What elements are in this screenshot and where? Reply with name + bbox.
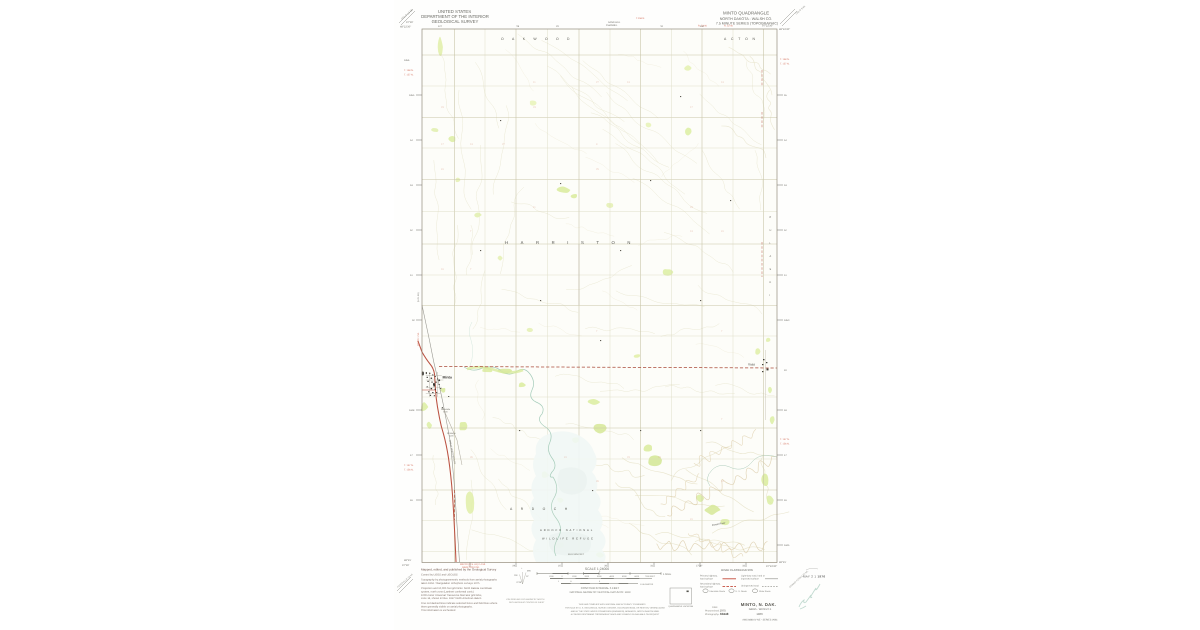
svg-text:MINTO, N. DAK.: MINTO, N. DAK.: [741, 602, 777, 607]
svg-text:1 MILE: 1 MILE: [663, 573, 671, 576]
svg-text:5345: 5345: [784, 544, 790, 547]
svg-text:25': 25': [556, 25, 560, 28]
svg-text:Secondary highway,: Secondary highway,: [700, 582, 721, 585]
svg-text:UTM GRID AND 1975 MAGNETIC NOR: UTM GRID AND 1975 MAGNETIC NORTH: [506, 598, 545, 601]
svg-text:48°15': 48°15': [404, 559, 412, 562]
svg-text:T. 157 N.: T. 157 N.: [780, 63, 790, 66]
svg-text:5350: 5350: [784, 319, 790, 322]
svg-text:Photography- 60448: Photography- 60448: [705, 612, 729, 616]
svg-text:97°22'30": 97°22'30": [766, 565, 777, 568]
svg-text:1963: 1963: [756, 612, 763, 616]
svg-text:Voss: Voss: [748, 363, 755, 367]
svg-text:CHANNEL: CHANNEL: [606, 24, 618, 27]
svg-text:hard surface: hard surface: [700, 586, 713, 589]
svg-text:5348: 5348: [409, 409, 415, 412]
svg-text:97°22'30": 97°22'30": [762, 25, 773, 28]
svg-text:T. 157 N.: T. 157 N.: [780, 438, 790, 441]
svg-text:U: U: [770, 229, 772, 232]
svg-text:Control by USGS and USC&GS: Control by USGS and USC&GS: [421, 574, 458, 577]
svg-text:NORTH DAKOTA - WALSH CO.: NORTH DAKOTA - WALSH CO.: [720, 17, 773, 21]
svg-text:N4815 - W9715/7.5: N4815 - W9715/7.5: [749, 608, 772, 611]
svg-text:5356: 5356: [404, 59, 410, 62]
svg-text:427: 427: [438, 25, 443, 28]
svg-text:GEOLOGICAL SURVEY: GEOLOGICAL SURVEY: [432, 19, 479, 24]
svg-text:State Route: State Route: [759, 590, 771, 593]
svg-text:48°22'30": 48°22'30": [779, 28, 790, 31]
svg-text:25': 25': [558, 565, 562, 568]
svg-text:(U.S. 81): (U.S. 81): [417, 292, 420, 302]
svg-text:zone 14, shown in blue. 1927: zone 14, shown in blue. 1927 North Ameri…: [421, 597, 481, 600]
svg-text:T. 157 N.: T. 157 N.: [404, 464, 414, 467]
svg-text:improved surface: improved surface: [741, 578, 759, 581]
svg-text:1963: 1963: [712, 606, 718, 609]
svg-text:taken 1963. Triangulation o: taken 1963. Triangulation orthophoto sur…: [421, 582, 480, 585]
svg-text:U. S. Route: U. S. Route: [736, 590, 748, 593]
svg-text:48°22'30": 48°22'30": [400, 26, 411, 29]
svg-text:97°30': 97°30': [406, 21, 414, 24]
svg-text:GN: GN: [514, 574, 518, 577]
svg-text:Cem: Cem: [443, 411, 448, 414]
svg-text:This information is unchecked: This information is unchecked: [421, 609, 456, 612]
svg-text:MINTO 1 MI.: MINTO 1 MI.: [417, 332, 420, 346]
svg-text:T. 156 N.: T. 156 N.: [404, 469, 414, 472]
svg-text:ARDOCH: ARDOCH: [510, 507, 576, 511]
svg-text:FOR SALE BY U. S. GEOLOGICAL S: FOR SALE BY U. S. GEOLOGICAL SURVEY, DEN…: [565, 606, 665, 609]
svg-text:0°28': 0°28': [517, 581, 523, 584]
svg-text:Primary highway,: Primary highway,: [700, 574, 718, 577]
svg-text:ROAD CLASSIFICATION: ROAD CLASSIFICATION: [721, 568, 753, 572]
svg-text:ACTON: ACTON: [724, 37, 760, 41]
svg-text:MINTO QUADRANGLE: MINTO QUADRANGLE: [723, 11, 769, 16]
svg-text:27'30": 27'30": [696, 565, 703, 568]
svg-text:WILDLIFE REFUGE: WILDLIFE REFUGE: [542, 538, 595, 541]
svg-text:St Marys: St Marys: [447, 432, 457, 435]
svg-text:97°30': 97°30': [402, 564, 410, 567]
svg-text:ARDOCH NATIONAL: ARDOCH NATIONAL: [540, 529, 594, 532]
svg-text:T. 158 N.: T. 158 N.: [404, 69, 414, 72]
svg-text:THIS MAP COMPLIES WITH NATIONA: THIS MAP COMPLIES WITH NATIONAL MAP ACCU…: [578, 603, 646, 606]
svg-text:QUADRANGLE LOCATION: QUADRANGLE LOCATION: [668, 605, 693, 608]
svg-text:NATIONAL GEODETIC VERTICAL: NATIONAL GEODETIC VERTICAL DATUM OF 1929: [570, 591, 631, 594]
svg-text:7000 FEET: 7000 FEET: [645, 575, 656, 578]
svg-text:T.158 N.: T.158 N.: [636, 17, 645, 20]
svg-text:T. 156 N.: T. 156 N.: [780, 443, 790, 446]
svg-text:T. 158 N.: T. 158 N.: [780, 58, 790, 61]
svg-text:Riverside: Riverside: [441, 408, 451, 411]
svg-text:AND BY THE STATE WATER COMMISS: AND BY THE STATE WATER COMMISSION (ENGIN…: [571, 610, 660, 613]
svg-text:A FOLDER DESCRIBING TOPOGRAPHI: A FOLDER DESCRIBING TOPOGRAPHIC MAPS AND…: [571, 613, 660, 616]
svg-text:R. 52 W.: R. 52 W.: [724, 25, 734, 28]
svg-text:5355: 5355: [409, 94, 415, 97]
svg-text:Minto: Minto: [443, 376, 453, 380]
svg-text:T. 157 N.: T. 157 N.: [404, 74, 414, 77]
svg-text:1 KILOMETER: 1 KILOMETER: [640, 583, 654, 586]
svg-text:48°15': 48°15': [779, 561, 787, 564]
svg-text:Mapped, edited, and published: Mapped, edited, and published by the Geo…: [421, 568, 497, 572]
svg-text:SCALE 1:24000: SCALE 1:24000: [585, 567, 609, 571]
svg-text:MAY 2 1 1976: MAY 2 1 1976: [803, 575, 825, 579]
svg-text:MN: MN: [527, 570, 531, 573]
svg-text:CONTOUR INTERVAL 5 FEET: CONTOUR INTERVAL 5 FEET: [581, 586, 620, 590]
svg-text:*: *: [521, 568, 522, 571]
svg-text:ELEV 825 FEET: ELEV 825 FEET: [568, 553, 585, 556]
svg-text:AMS 6868 IV NE - SERIES V661: AMS 6868 IV NE - SERIES V661: [742, 619, 778, 622]
svg-text:Light-duty road, hard or: Light-duty road, hard or: [741, 574, 765, 577]
svg-text:OAKWOOD: OAKWOOD: [501, 37, 578, 41]
svg-text:DECLINATION AT CENTER OF SHEET: DECLINATION AT CENTER OF SHEET: [509, 601, 545, 604]
svg-text:Cem: Cem: [449, 435, 454, 438]
svg-text:Interstate Route: Interstate Route: [710, 590, 726, 593]
svg-text:hard surface: hard surface: [700, 578, 713, 581]
svg-text:R. 53 W.: R. 53 W.: [698, 25, 708, 28]
svg-text:11°: 11°: [526, 575, 529, 578]
svg-text:HARRISTON: HARRISTON: [505, 240, 643, 245]
svg-text:Unimproved road: Unimproved road: [741, 584, 759, 587]
